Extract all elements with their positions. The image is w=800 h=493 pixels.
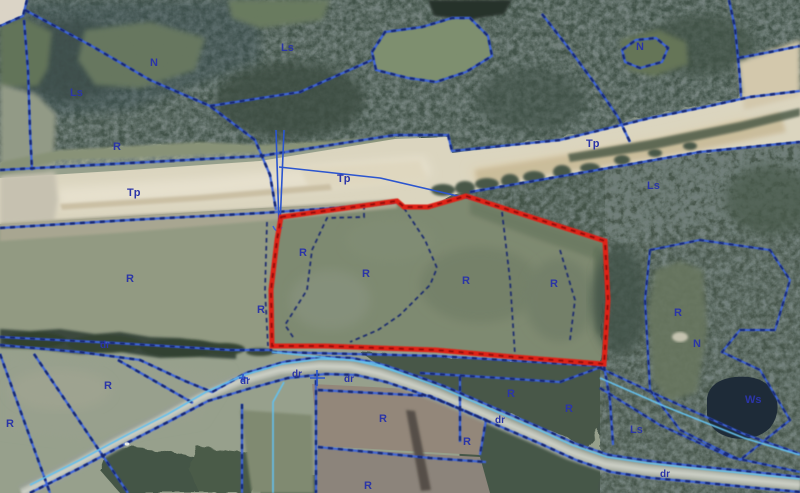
svg-text:R: R [113,141,121,153]
svg-text:R: R [507,388,515,400]
svg-text:R: R [550,278,558,290]
svg-text:Ls: Ls [647,180,660,192]
svg-text:R: R [674,307,682,319]
svg-text:R: R [463,436,471,448]
svg-text:Tp: Tp [127,187,141,199]
svg-text:R: R [126,273,134,285]
svg-text:Tp: Tp [337,173,351,185]
svg-text:R: R [462,275,470,287]
svg-text:dr: dr [240,376,250,387]
svg-text:R: R [565,403,573,415]
svg-text:R: R [6,418,14,430]
svg-text:Ls: Ls [630,424,643,436]
svg-text:Tp: Tp [586,138,600,150]
svg-text:Ls: Ls [70,87,83,99]
svg-text:dr: dr [495,415,505,426]
svg-text:dr: dr [292,369,302,380]
svg-text:dr: dr [100,340,110,351]
svg-text:R: R [364,480,372,492]
svg-text:R: R [257,304,265,316]
svg-text:N: N [693,338,701,350]
svg-text:R: R [299,247,307,259]
svg-text:N: N [636,41,644,53]
svg-text:R: R [104,380,112,392]
svg-text:N: N [150,57,158,69]
svg-text:R: R [379,413,387,425]
svg-text:dr: dr [344,374,354,385]
svg-text:R: R [362,268,370,280]
svg-text:Ws: Ws [745,394,762,406]
svg-text:dr: dr [660,469,670,480]
svg-text:Ls: Ls [281,42,294,54]
